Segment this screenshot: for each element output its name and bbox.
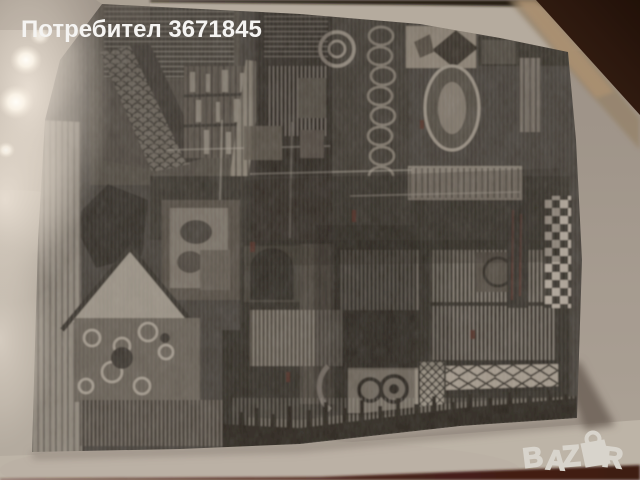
- svg-text:Потребител 3671845: Потребител 3671845: [21, 16, 262, 43]
- svg-text:B: B: [521, 441, 545, 474]
- svg-text:Z: Z: [561, 440, 582, 474]
